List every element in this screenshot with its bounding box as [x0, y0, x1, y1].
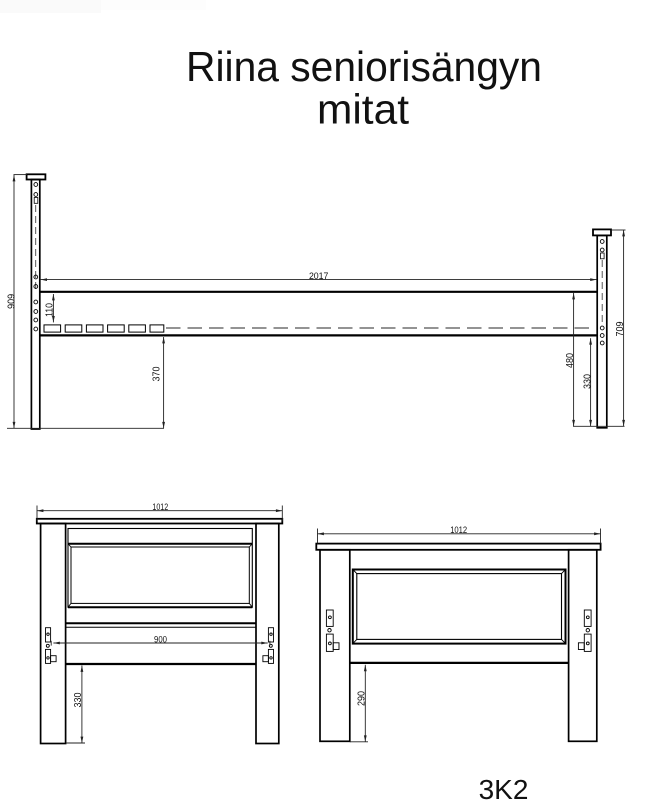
- svg-text:370: 370: [152, 366, 163, 381]
- svg-text:900: 900: [154, 634, 167, 644]
- svg-text:3K2: 3K2: [479, 774, 529, 803]
- svg-text:2017: 2017: [309, 271, 329, 281]
- svg-text:909: 909: [7, 294, 18, 309]
- svg-text:709: 709: [615, 321, 626, 336]
- svg-text:290: 290: [357, 691, 368, 706]
- svg-text:1012: 1012: [152, 502, 168, 512]
- svg-text:330: 330: [73, 692, 84, 707]
- svg-text:1012: 1012: [450, 525, 467, 535]
- svg-text:110: 110: [45, 303, 56, 317]
- svg-text:mitat: mitat: [317, 86, 409, 133]
- svg-text:330: 330: [582, 374, 593, 389]
- svg-text:480: 480: [565, 353, 576, 368]
- svg-text:Riina seniorisängyn: Riina seniorisängyn: [186, 43, 542, 90]
